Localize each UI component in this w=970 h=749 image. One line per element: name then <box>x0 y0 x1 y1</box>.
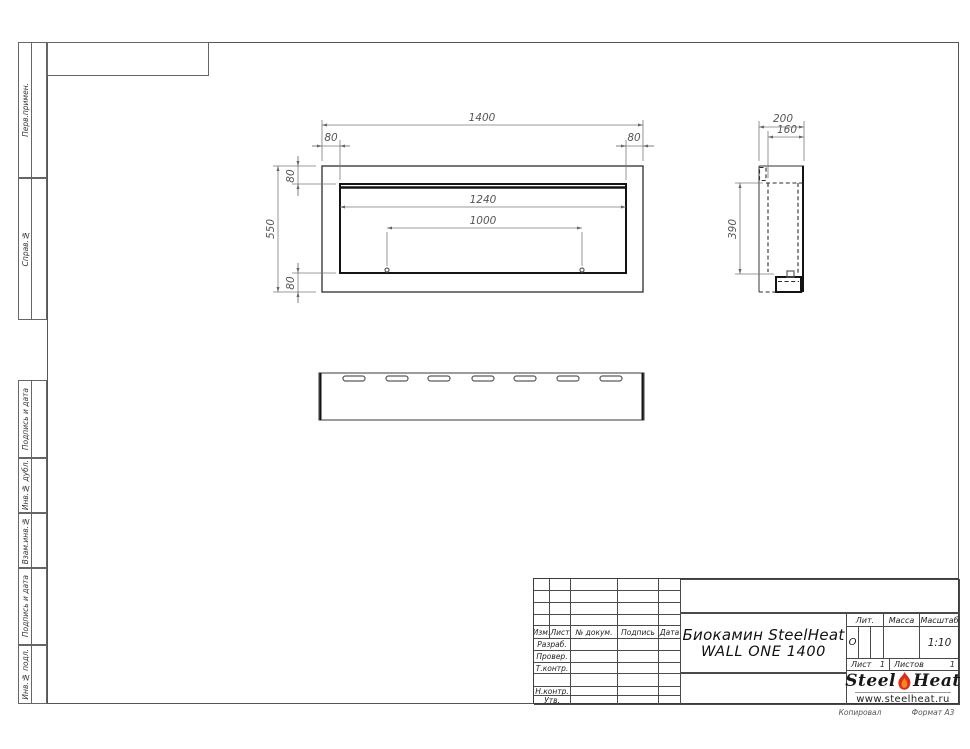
dim-front-offset-bottom: 80 <box>285 276 297 290</box>
role-utv: Утв. <box>534 696 571 705</box>
mass-header: Масса <box>883 613 920 627</box>
sheets-label: Листов <box>894 660 924 669</box>
revision-header-row: Изм. Лист № докум. Подпись Дата <box>534 626 681 639</box>
col-izm: Изм. <box>534 626 550 639</box>
vent-slot-3 <box>428 376 450 381</box>
col-dokum: № докум. <box>571 626 618 639</box>
role-prover: Провер. <box>534 651 571 663</box>
company-logo-cell: Steel Heat www.steelheat.ru <box>846 670 960 705</box>
vent-slot-5 <box>514 376 536 381</box>
front-view-dimensions: 1400 80 80 550 80 80 124 <box>265 112 654 303</box>
logo: Steel Heat <box>845 671 960 691</box>
lit-cell-3 <box>870 626 884 659</box>
vent-slot-7 <box>600 376 622 381</box>
side-view-outline <box>759 166 804 292</box>
scale-value-cell: 1:10 <box>919 626 960 659</box>
front-mount-hole-right <box>580 268 584 272</box>
dim-front-height: 550 <box>265 219 277 239</box>
role-nkontr: Н.контр. <box>534 687 571 696</box>
side-burner-box <box>776 277 801 292</box>
col-data: Дата <box>659 626 681 639</box>
logo-divider <box>855 692 951 693</box>
product-name-cell: Биокамин SteelHeat WALL ONE 1400 <box>680 613 847 673</box>
title-block: Изм. Лист № докум. Подпись Дата Разраб. … <box>533 578 959 704</box>
logo-word-heat: Heat <box>913 671 961 691</box>
bottom-outer-rect <box>319 373 644 420</box>
dim-front-opening-width: 1240 <box>470 194 497 206</box>
dim-front-offset-right: 80 <box>627 132 641 144</box>
copied-label: Копировал <box>825 708 895 717</box>
vent-slot-4 <box>472 376 494 381</box>
drawing-sheet: Перв.примен. Справ.№ Подпись и дата Инв.… <box>0 0 970 749</box>
designation-cell <box>680 579 960 613</box>
vent-slot-2 <box>386 376 408 381</box>
dim-side-inner-depth: 160 <box>777 124 797 136</box>
role-empty <box>534 674 571 687</box>
dim-side-inner-height: 390 <box>727 219 739 239</box>
vent-slot-1 <box>343 376 365 381</box>
product-title-line1: Биокамин SteelHeat <box>682 626 844 644</box>
product-title-line2: WALL ONE 1400 <box>701 644 826 660</box>
front-mount-hole-left <box>385 268 389 272</box>
logo-word-steel: Steel <box>845 671 896 691</box>
flame-icon <box>897 672 912 691</box>
role-tkontr: Т.контр. <box>534 663 571 674</box>
sheets-total: 1 <box>950 660 955 669</box>
dim-front-offset-left: 80 <box>324 132 338 144</box>
dim-front-mount-spacing: 1000 <box>470 215 497 227</box>
signature-table: Разраб. Провер. Т.контр. Н.контр. Утв. <box>534 639 681 705</box>
side-view-dimensions: 200 160 390 <box>727 113 804 274</box>
dim-front-width: 1400 <box>469 112 496 124</box>
sheet-label: Лист <box>851 660 871 669</box>
dim-front-offset-top: 80 <box>285 169 297 183</box>
bottom-center-cell <box>680 673 847 705</box>
scale-header: Масштаб <box>919 613 960 627</box>
vent-slot-6 <box>557 376 579 381</box>
lit-header: Лит. <box>846 613 884 627</box>
mass-value-cell <box>883 626 920 659</box>
col-list: Лист <box>550 626 571 639</box>
side-bracket-hidden <box>760 168 767 181</box>
sheet-value: 1 <box>880 660 885 669</box>
company-website: www.steelheat.ru <box>856 694 950 705</box>
col-podpis: Подпись <box>618 626 659 639</box>
revision-table <box>534 579 681 626</box>
format-label: Формат А3 <box>898 708 968 717</box>
role-razrab: Разраб. <box>534 639 571 651</box>
bottom-view-outline <box>319 373 644 420</box>
front-view-outline <box>322 166 643 292</box>
